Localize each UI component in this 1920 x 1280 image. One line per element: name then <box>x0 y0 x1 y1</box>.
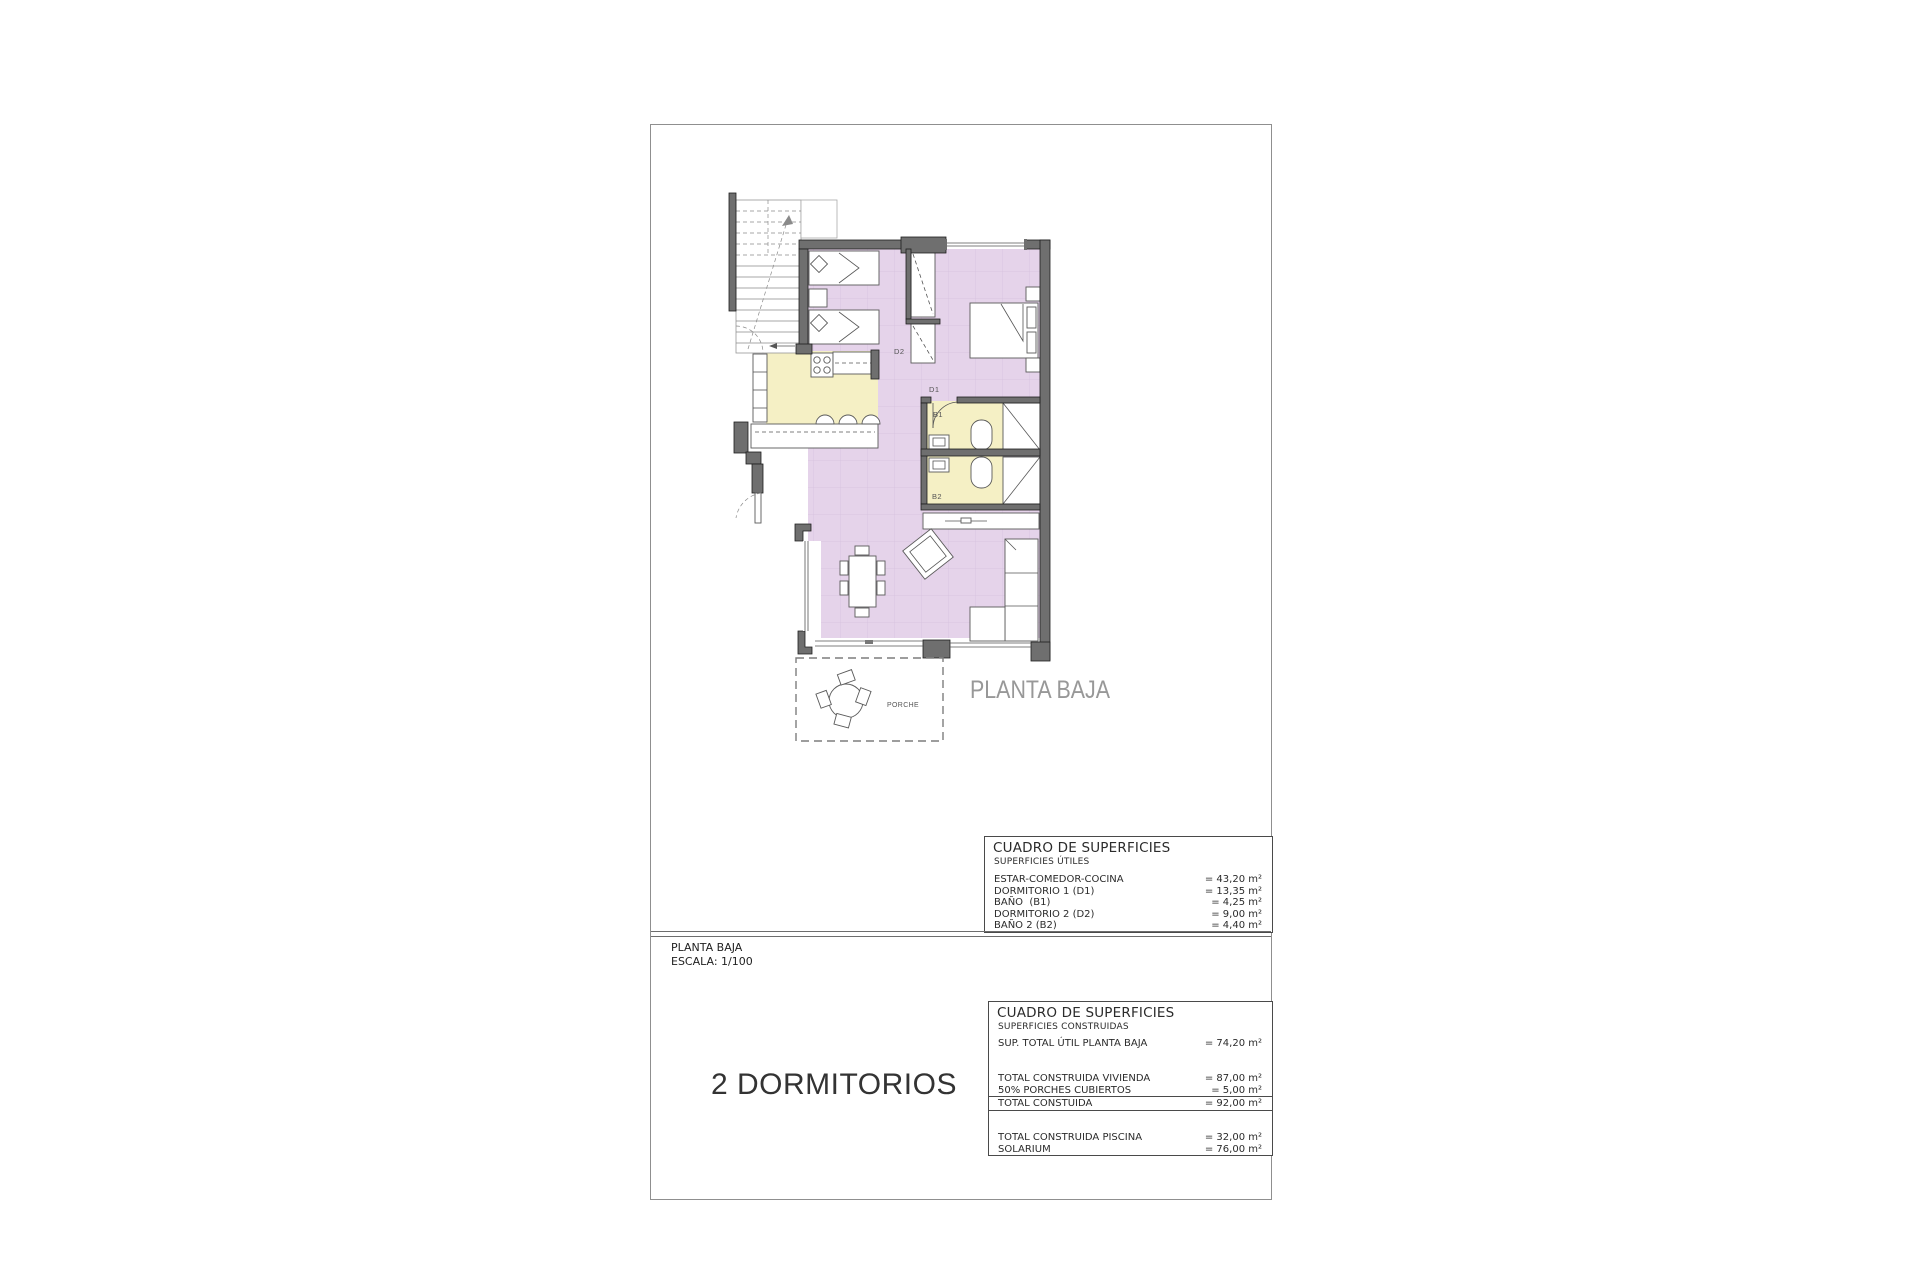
row-label: DORMITORIO 1 (D1) <box>994 886 1094 897</box>
row-label: TOTAL CONSTUIDA <box>998 1098 1092 1109</box>
row-label: BAÑO (B1) <box>994 897 1050 908</box>
nightstand-d1-bottom <box>1026 358 1040 372</box>
table-row: BAÑO (B1) = 4,25 m² <box>994 897 1262 908</box>
room-label-d2: D2 <box>894 347 904 356</box>
row-label: SUP. TOTAL ÚTIL PLANTA BAJA <box>998 1038 1147 1049</box>
row-value: = 4,40 m² <box>1211 920 1262 931</box>
row-value: = 32,00 m² <box>1205 1132 1262 1143</box>
kitchen-cabinets <box>753 354 767 422</box>
title-block: PLANTA BAJA ESCALA: 1/100 <box>671 941 753 969</box>
page-canvas: D2 D1 B1 B2 PORCHE PLANTA BAJA CUADRO DE… <box>0 0 1920 1280</box>
plan-title: PLANTA BAJA <box>970 676 1110 704</box>
bed-double <box>970 303 1038 358</box>
row-value: = 76,00 m² <box>1205 1144 1262 1155</box>
table-row: SUP. TOTAL ÚTIL PLANTA BAJA = 74,20 m² <box>998 1038 1262 1049</box>
row-label: SOLARIUM <box>998 1144 1051 1155</box>
row-label: BAÑO 2 (B2) <box>994 920 1057 931</box>
row-value: = 87,00 m² <box>1205 1073 1262 1084</box>
entry-door <box>736 493 761 523</box>
porch-label: PORCHE <box>887 700 919 709</box>
row-label: DORMITORIO 2 (D2) <box>994 909 1094 920</box>
nightstand-d1-top <box>1026 287 1040 301</box>
row-label: TOTAL CONSTRUIDA VIVIENDA <box>998 1073 1150 1084</box>
table-superficies-construidas: CUADRO DE SUPERFICIES SUPERFICIES CONSTR… <box>988 1001 1273 1156</box>
sheet-divider-line <box>651 931 1271 932</box>
row-label: 50% PORCHES CUBIERTOS <box>998 1085 1131 1096</box>
footer-scale: ESCALA: 1/100 <box>671 955 753 969</box>
room-label-b1: B1 <box>933 410 943 419</box>
row-label: TOTAL CONSTRUIDA PISCINA <box>998 1132 1142 1143</box>
kitchen-stove <box>811 353 833 377</box>
row-value: = 13,35 m² <box>1205 886 1262 897</box>
porch-chair <box>816 690 831 708</box>
table-construidas-title: CUADRO DE SUPERFICIES <box>997 1005 1174 1021</box>
porch-chair <box>837 670 855 685</box>
table-construidas-subtitle: SUPERFICIES CONSTRUIDAS <box>998 1022 1129 1032</box>
room-label-b2: B2 <box>932 492 942 501</box>
table-row: 50% PORCHES CUBIERTOS = 5,00 m² <box>998 1085 1262 1096</box>
tv-console <box>923 513 1039 529</box>
table-row: DORMITORIO 2 (D2) = 9,00 m² <box>994 909 1262 920</box>
footer-plan-name: PLANTA BAJA <box>671 941 753 955</box>
table-row: DORMITORIO 1 (D1) = 13,35 m² <box>994 886 1262 897</box>
table-utiles-subtitle: SUPERFICIES ÚTILES <box>994 857 1089 867</box>
table-row: SOLARIUM = 76,00 m² <box>998 1144 1262 1155</box>
floor-plan-drawing: D2 D1 B1 B2 PORCHE PLANTA BAJA <box>651 125 1273 931</box>
bed-single-2 <box>809 310 879 344</box>
table-total-row: TOTAL CONSTUIDA = 92,00 m² <box>998 1098 1262 1109</box>
table-row: ESTAR-COMEDOR-COCINA = 43,20 m² <box>994 874 1262 885</box>
porch <box>796 658 943 741</box>
row-value: = 4,25 m² <box>1211 897 1262 908</box>
row-value: = 74,20 m² <box>1205 1038 1262 1049</box>
sheet-divider-line <box>651 936 1271 937</box>
table-row: BAÑO 2 (B2) = 4,40 m² <box>994 920 1262 931</box>
row-value: = 9,00 m² <box>1211 909 1262 920</box>
kitchen-counter <box>833 352 871 374</box>
window-porch-side <box>803 541 810 631</box>
window-bottom-right <box>950 643 1031 647</box>
row-value: = 5,00 m² <box>1211 1085 1262 1096</box>
wardrobe-2 <box>911 323 935 363</box>
table-row: TOTAL CONSTRUIDA VIVIENDA = 87,00 m² <box>998 1073 1262 1084</box>
window-top <box>944 239 1027 250</box>
bed-single-1 <box>809 251 879 285</box>
table-row: TOTAL CONSTRUIDA PISCINA = 32,00 m² <box>998 1132 1262 1143</box>
headline-bedrooms: 2 DORMITORIOS <box>711 1068 957 1102</box>
row-value: = 43,20 m² <box>1205 874 1262 885</box>
sliding-door-bottom <box>815 640 923 646</box>
drawing-sheet: D2 D1 B1 B2 PORCHE PLANTA BAJA CUADRO DE… <box>650 124 1272 1200</box>
row-value: = 92,00 m² <box>1205 1098 1262 1109</box>
table-superficies-utiles: CUADRO DE SUPERFICIES SUPERFICIES ÚTILES… <box>984 836 1273 933</box>
total-row-band: TOTAL CONSTUIDA = 92,00 m² <box>989 1096 1272 1111</box>
table-utiles-title: CUADRO DE SUPERFICIES <box>993 840 1170 856</box>
row-label: ESTAR-COMEDOR-COCINA <box>994 874 1124 885</box>
wardrobe-1 <box>911 251 935 317</box>
nightstand-d2 <box>809 289 827 307</box>
room-label-d1: D1 <box>929 385 939 394</box>
